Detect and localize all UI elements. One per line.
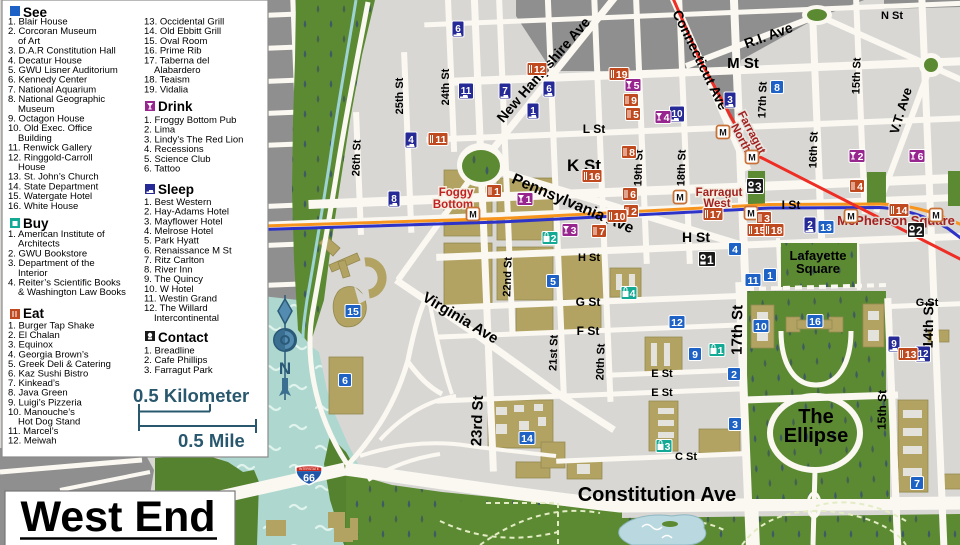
svg-text:1: 1 bbox=[707, 253, 714, 267]
svg-text:E St: E St bbox=[651, 387, 673, 399]
svg-text:0.5 Kilometer: 0.5 Kilometer bbox=[133, 385, 249, 406]
svg-text:9: 9 bbox=[692, 349, 698, 361]
svg-text:10: 10 bbox=[614, 211, 626, 223]
svg-text:12: 12 bbox=[534, 64, 546, 76]
svg-text:23rd St: 23rd St bbox=[468, 395, 487, 446]
svg-text:1: 1 bbox=[767, 270, 773, 282]
svg-text:6: 6 bbox=[918, 151, 924, 163]
svg-text:10: 10 bbox=[755, 321, 767, 333]
svg-text:H St: H St bbox=[578, 252, 600, 264]
svg-text:24th St: 24th St bbox=[440, 68, 452, 105]
svg-text:F St: F St bbox=[577, 324, 600, 338]
svg-text:1: 1 bbox=[526, 194, 532, 206]
svg-text:L St: L St bbox=[583, 122, 605, 136]
svg-text:4: 4 bbox=[630, 288, 636, 300]
svg-text:6: 6 bbox=[630, 189, 636, 201]
svg-text:21st St: 21st St bbox=[547, 334, 560, 371]
svg-text:3: 3 bbox=[571, 225, 577, 237]
svg-text:15th St: 15th St bbox=[875, 390, 890, 430]
svg-text:M: M bbox=[748, 153, 756, 163]
svg-text:5: 5 bbox=[633, 109, 639, 121]
svg-text:1: 1 bbox=[718, 345, 724, 357]
svg-text:13: 13 bbox=[905, 349, 917, 361]
svg-text:14th St: 14th St bbox=[920, 301, 937, 348]
svg-text:M: M bbox=[469, 210, 477, 220]
svg-text:22nd St: 22nd St bbox=[501, 256, 514, 296]
svg-text:Ellipse: Ellipse bbox=[784, 425, 848, 447]
svg-text:4: 4 bbox=[664, 112, 670, 124]
svg-text:4: 4 bbox=[857, 181, 863, 193]
svg-text:Constitution Ave: Constitution Ave bbox=[578, 484, 737, 506]
svg-text:West End: West End bbox=[20, 493, 215, 541]
svg-text:26th St: 26th St bbox=[350, 139, 363, 176]
svg-text:16th St: 16th St bbox=[807, 131, 820, 168]
svg-text:Eat: Eat bbox=[23, 306, 45, 321]
svg-text:16: 16 bbox=[589, 171, 601, 183]
svg-text:11: 11 bbox=[747, 275, 758, 287]
svg-text:18: 18 bbox=[771, 225, 783, 237]
svg-text:3: 3 bbox=[755, 180, 762, 194]
svg-text:I St: I St bbox=[782, 198, 801, 212]
svg-text:3: 3 bbox=[665, 441, 671, 453]
svg-text:12: 12 bbox=[671, 317, 683, 329]
svg-text:17: 17 bbox=[710, 209, 722, 221]
svg-text:M: M bbox=[747, 209, 755, 219]
svg-text:4: 4 bbox=[732, 244, 738, 256]
svg-text:15: 15 bbox=[347, 306, 359, 318]
svg-text:2: 2 bbox=[631, 206, 637, 218]
svg-text:M: M bbox=[932, 211, 940, 221]
svg-text:25th St: 25th St bbox=[394, 77, 406, 114]
svg-text:9: 9 bbox=[631, 95, 637, 107]
svg-text:N: N bbox=[279, 359, 291, 378]
svg-text:5: 5 bbox=[550, 276, 556, 288]
svg-text:Drink: Drink bbox=[158, 99, 193, 114]
svg-text:20th St: 20th St bbox=[594, 343, 607, 380]
svg-text:13: 13 bbox=[820, 222, 832, 234]
svg-text:Square: Square bbox=[796, 261, 840, 276]
svg-text:16: 16 bbox=[809, 316, 821, 328]
svg-text:E St: E St bbox=[651, 368, 673, 380]
svg-text:11: 11 bbox=[435, 134, 446, 146]
svg-text:15th St: 15th St bbox=[850, 57, 863, 94]
svg-text:Sleep: Sleep bbox=[158, 182, 194, 197]
svg-text:8: 8 bbox=[774, 82, 780, 94]
svg-text:2: 2 bbox=[916, 224, 923, 238]
svg-text:Contact: Contact bbox=[158, 330, 209, 345]
svg-text:2: 2 bbox=[858, 151, 864, 163]
svg-text:M St: M St bbox=[727, 55, 759, 72]
svg-text:7: 7 bbox=[599, 226, 605, 238]
svg-text:G St: G St bbox=[576, 295, 601, 309]
svg-text:14: 14 bbox=[521, 433, 533, 445]
svg-text:M: M bbox=[676, 193, 684, 203]
svg-text:INTERSTATE: INTERSTATE bbox=[299, 467, 320, 471]
svg-text:M: M bbox=[847, 212, 855, 222]
svg-text:5: 5 bbox=[634, 80, 640, 92]
svg-text:6: 6 bbox=[342, 375, 348, 387]
svg-text:2: 2 bbox=[731, 369, 737, 381]
svg-text:17th St: 17th St bbox=[729, 305, 747, 355]
svg-text:H St: H St bbox=[682, 229, 710, 245]
svg-text:Foggy: Foggy bbox=[439, 187, 474, 199]
svg-text:17th St: 17th St bbox=[756, 81, 769, 118]
svg-text:1: 1 bbox=[494, 186, 500, 198]
svg-text:0.5 Mile: 0.5 Mile bbox=[178, 430, 245, 451]
svg-text:8: 8 bbox=[629, 147, 635, 159]
svg-text:3: 3 bbox=[732, 419, 738, 431]
svg-text:7: 7 bbox=[914, 478, 920, 490]
svg-text:18th St: 18th St bbox=[675, 149, 688, 186]
svg-text:C St: C St bbox=[675, 451, 697, 463]
svg-text:N St: N St bbox=[881, 10, 903, 22]
svg-text:14: 14 bbox=[896, 205, 908, 217]
svg-text:66: 66 bbox=[303, 472, 315, 484]
svg-text:M: M bbox=[719, 128, 727, 138]
svg-text:2: 2 bbox=[551, 233, 557, 245]
